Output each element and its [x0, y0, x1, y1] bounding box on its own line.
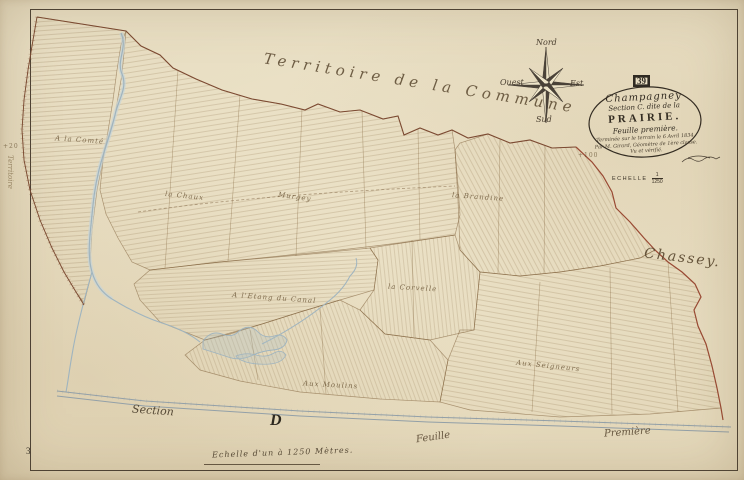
sheet-number-box: 39: [633, 75, 650, 87]
scale-label: ECHELLE: [612, 176, 648, 182]
elevation-mark-right: +100: [578, 152, 598, 159]
cartouche: Champagney Section C. dite de la PRAIRIE…: [584, 89, 705, 158]
elevation-mark-left: +20: [3, 143, 19, 150]
compass-north-label: Nord: [536, 38, 557, 47]
parcel-region-southeast: [440, 250, 721, 417]
scale-fraction: 1 1250: [652, 173, 663, 185]
compass-east-label: Est: [570, 79, 583, 88]
left-margin-note: Territoire: [6, 155, 14, 189]
page-number: 3: [26, 446, 31, 456]
cadastral-map-sheet: 39 Champagney Section C. dite de la PRAI…: [0, 0, 744, 480]
compass-west-label: Ouest: [500, 78, 524, 87]
section-letter-label: D: [270, 412, 282, 430]
scale-bar: [204, 464, 320, 465]
scale-ratio: ECHELLE 1 1250: [612, 173, 663, 185]
signature-flourish-icon: [682, 156, 720, 162]
compass-south-label: Sud: [536, 115, 552, 124]
